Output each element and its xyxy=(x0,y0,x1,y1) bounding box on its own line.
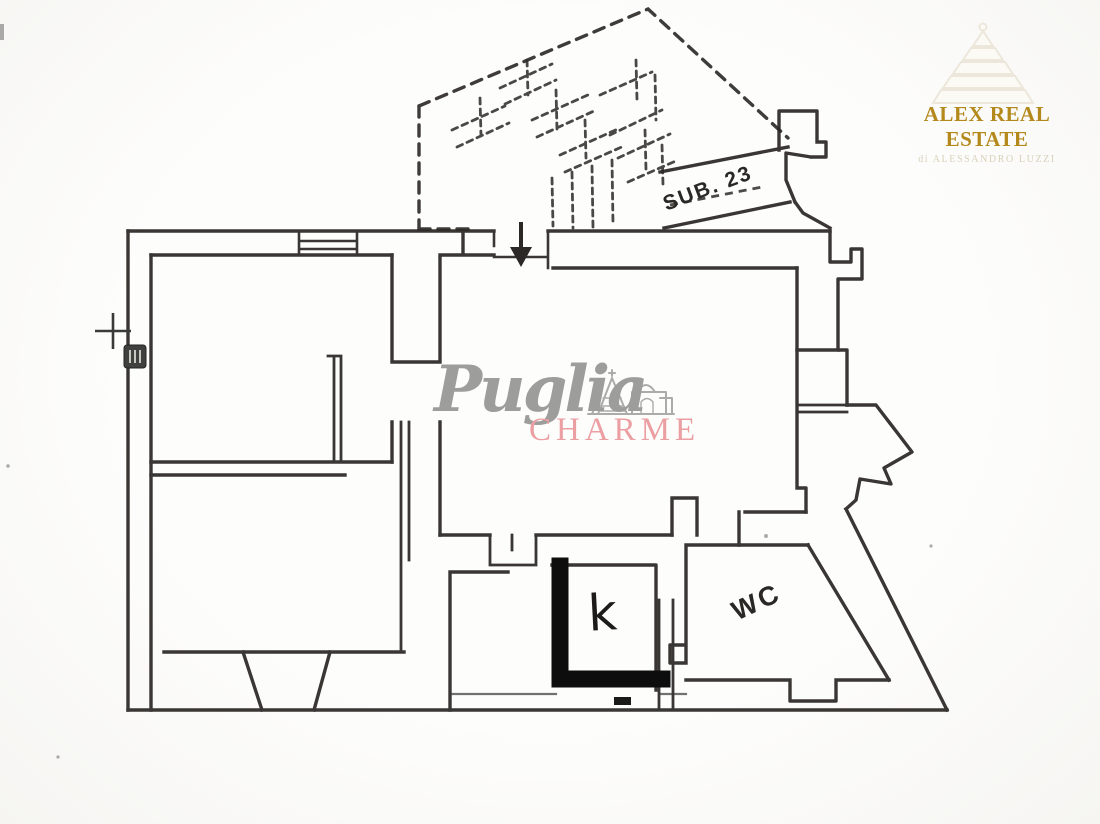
entrance-arrow-icon xyxy=(510,222,532,267)
watermark-charme: CHARME xyxy=(529,412,700,449)
agency-logo-subtitle: di ALESSANDRO LUZZI xyxy=(884,154,1090,165)
hatch-mark-icon xyxy=(124,345,146,368)
trullo-cone-icon xyxy=(933,24,1033,104)
agency-logo-title: ALEX REAL ESTATE xyxy=(884,102,1090,152)
agency-logo: ALEX REAL ESTATE di ALESSANDRO LUZZI xyxy=(884,102,1090,165)
label-kitchen-k: k xyxy=(587,583,619,642)
annex-stair-scribbles xyxy=(452,60,678,228)
floorplan-scan-page: SUB. 23 WC k Puglia CHARME ALEX REAL EST… xyxy=(0,0,1100,824)
plus-survey-mark xyxy=(95,313,131,349)
